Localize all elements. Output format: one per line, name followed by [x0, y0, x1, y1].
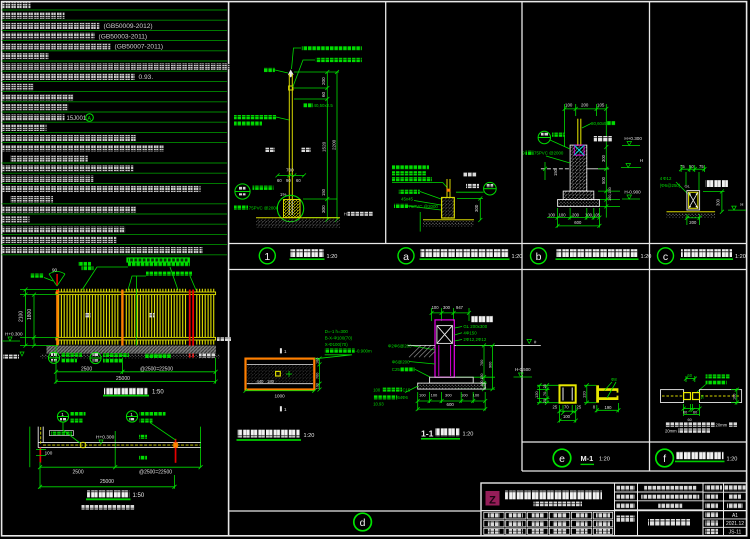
- svg-text:300: 300: [716, 198, 721, 206]
- svg-text:H+0.300: H+0.300: [624, 136, 642, 141]
- svg-text:60: 60: [321, 91, 326, 97]
- svg-text:1:20: 1:20: [512, 254, 523, 260]
- svg-text:100: 100: [431, 393, 438, 398]
- svg-text:1:20: 1:20: [727, 456, 738, 462]
- svg-text:1000: 1000: [275, 393, 286, 398]
- svg-text:120: 120: [582, 391, 587, 398]
- svg-text:25: 25: [543, 384, 547, 388]
- svg-text:1: 1: [130, 412, 133, 418]
- svg-text:25: 25: [553, 404, 558, 409]
- svg-text:B-X-Φ100(70): B-X-Φ100(70): [325, 336, 353, 341]
- svg-text:-0.900m: -0.900m: [356, 349, 372, 354]
- svg-text:70: 70: [543, 392, 547, 396]
- svg-text:90: 90: [52, 267, 58, 272]
- svg-text:40,50x2.5: 40,50x2.5: [314, 103, 334, 108]
- svg-text:100: 100: [432, 305, 440, 310]
- svg-text:100: 100: [563, 414, 571, 419]
- svg-text:(GB50009-2012): (GB50009-2012): [104, 23, 153, 30]
- svg-text:70: 70: [564, 404, 569, 409]
- svg-text:1: 1: [61, 412, 64, 418]
- svg-text:b: b: [536, 251, 542, 263]
- svg-text:@2500=22500: @2500=22500: [139, 469, 172, 475]
- svg-text:25: 25: [577, 404, 582, 409]
- svg-text:75PVC @2000: 75PVC @2000: [534, 150, 564, 155]
- svg-text:C25: C25: [392, 367, 401, 372]
- svg-text:25000: 25000: [100, 479, 114, 485]
- svg-text:45x45: 45x45: [401, 196, 414, 201]
- svg-text:100: 100: [548, 212, 556, 217]
- svg-text:1: 1: [264, 251, 270, 263]
- svg-text:Z: Z: [489, 495, 496, 507]
- svg-text:150: 150: [553, 168, 558, 176]
- svg-text:(GB50007-2011): (GB50007-2011): [115, 44, 164, 51]
- svg-text:150: 150: [321, 188, 326, 196]
- svg-text:d: d: [360, 517, 366, 529]
- svg-text:300: 300: [474, 204, 479, 212]
- svg-text:GL 200x300: GL 200x300: [463, 324, 487, 329]
- svg-text:100: 100: [565, 102, 573, 107]
- svg-text:1:20: 1:20: [735, 254, 746, 260]
- svg-text:M-1: M-1: [581, 454, 594, 463]
- svg-text:90: 90: [286, 178, 291, 183]
- svg-text:75PVC: 75PVC: [152, 353, 166, 358]
- svg-text:440: 440: [257, 379, 265, 384]
- svg-text:Φ6@200: Φ6@200: [392, 359, 410, 364]
- svg-text:75PVC @2000: 75PVC @2000: [249, 206, 279, 211]
- svg-text:100: 100: [315, 383, 319, 389]
- svg-text:64Φ6: 64Φ6: [398, 395, 409, 400]
- svg-text:f: f: [663, 453, 666, 465]
- svg-text:2200: 2200: [331, 139, 336, 150]
- svg-text:1:50: 1:50: [133, 493, 145, 499]
- svg-text:60: 60: [687, 373, 692, 378]
- svg-text:50: 50: [700, 395, 704, 399]
- svg-text:700: 700: [286, 168, 294, 173]
- svg-text:105: 105: [597, 102, 605, 107]
- svg-text:4Φ150: 4Φ150: [463, 330, 477, 335]
- svg-text:1:20: 1:20: [463, 432, 474, 438]
- svg-text:0.93.: 0.93.: [139, 74, 154, 81]
- svg-text:D=-1 h=300: D=-1 h=300: [325, 329, 349, 334]
- svg-text:20mm: 20mm: [716, 423, 728, 428]
- svg-text:700: 700: [480, 360, 484, 366]
- svg-text:75: 75: [699, 164, 704, 169]
- svg-text:100: 100: [45, 450, 53, 455]
- svg-text:A: A: [88, 116, 92, 122]
- svg-text:JS-11: JS-11: [729, 530, 742, 536]
- svg-text:20mm: 20mm: [665, 429, 677, 434]
- svg-text:1:50: 1:50: [152, 390, 164, 396]
- svg-text:H+0.300: H+0.300: [5, 332, 23, 337]
- svg-text:200: 200: [581, 102, 589, 107]
- svg-text:e: e: [559, 453, 565, 465]
- svg-text:1:20: 1:20: [641, 254, 652, 260]
- svg-text:2021.12: 2021.12: [726, 521, 744, 527]
- svg-text:1:20: 1:20: [599, 457, 610, 463]
- svg-text:2500: 2500: [73, 469, 84, 475]
- svg-text:60: 60: [277, 178, 282, 183]
- svg-text:10.93: 10.93: [373, 402, 384, 407]
- svg-text:300: 300: [601, 154, 606, 162]
- svg-text:180: 180: [267, 379, 275, 384]
- svg-text:80,60x5: 80,60x5: [591, 121, 607, 126]
- svg-text:900: 900: [488, 362, 492, 368]
- svg-text:100: 100: [419, 393, 426, 398]
- svg-text:300: 300: [445, 393, 452, 398]
- svg-text:1800: 1800: [27, 309, 33, 320]
- svg-text:120: 120: [534, 391, 539, 398]
- svg-text:Φ12: Φ12: [663, 176, 672, 181]
- svg-text:60: 60: [693, 411, 697, 415]
- svg-text:a: a: [403, 251, 409, 263]
- svg-text:1520: 1520: [322, 141, 327, 152]
- svg-text:25: 25: [543, 399, 547, 403]
- svg-text:1-1: 1-1: [421, 429, 434, 439]
- svg-text:600: 600: [447, 402, 455, 407]
- svg-text:2100: 2100: [19, 311, 25, 322]
- svg-text:100: 100: [461, 393, 468, 398]
- svg-text:200: 200: [572, 212, 580, 217]
- svg-text:500: 500: [601, 176, 606, 184]
- svg-text:1:20: 1:20: [304, 433, 315, 439]
- svg-text:X-Φ100(70): X-Φ100(70): [325, 342, 349, 347]
- svg-text:c: c: [663, 251, 668, 263]
- svg-text:60: 60: [296, 178, 301, 183]
- svg-text:100,150: 100,150: [608, 187, 612, 201]
- svg-text:A1: A1: [732, 513, 738, 519]
- svg-text:H: H: [740, 202, 743, 207]
- svg-text:H-0.500: H-0.500: [515, 367, 531, 372]
- svg-text:600: 600: [574, 220, 582, 225]
- svg-text:@2500=22500: @2500=22500: [140, 366, 173, 372]
- svg-text:100: 100: [733, 394, 737, 400]
- svg-text:25000: 25000: [116, 376, 130, 382]
- svg-text:947: 947: [456, 305, 464, 310]
- svg-text:100: 100: [559, 212, 567, 217]
- svg-text:190: 190: [605, 405, 613, 410]
- svg-text:2500: 2500: [81, 366, 92, 372]
- svg-text:200: 200: [321, 77, 326, 85]
- svg-text:100: 100: [473, 393, 480, 398]
- svg-text:100: 100: [373, 387, 381, 392]
- svg-text:300: 300: [443, 305, 451, 310]
- svg-text:Φ2Φ6@200: Φ2Φ6@200: [388, 343, 412, 348]
- svg-text:1: 1: [284, 407, 287, 412]
- svg-text:Φ8: Φ8: [611, 377, 617, 382]
- svg-text:60: 60: [688, 418, 692, 422]
- svg-text:15J001: 15J001: [67, 116, 87, 122]
- svg-text:H-0.900: H-0.900: [624, 189, 641, 194]
- svg-text:300: 300: [321, 205, 326, 213]
- svg-text:H: H: [640, 158, 643, 163]
- svg-text:700: 700: [315, 373, 319, 379]
- svg-text:1:20: 1:20: [327, 254, 338, 260]
- svg-text:200: 200: [689, 220, 697, 225]
- svg-text:1: 1: [284, 349, 287, 354]
- svg-text:60: 60: [683, 411, 687, 415]
- svg-text:GL: GL: [685, 183, 691, 188]
- svg-text:H: H: [344, 212, 347, 217]
- svg-text:(GB50003-2011): (GB50003-2011): [99, 33, 148, 40]
- svg-text:100: 100: [315, 358, 319, 364]
- svg-text:2Φ12,2Φ12: 2Φ12,2Φ12: [463, 337, 486, 342]
